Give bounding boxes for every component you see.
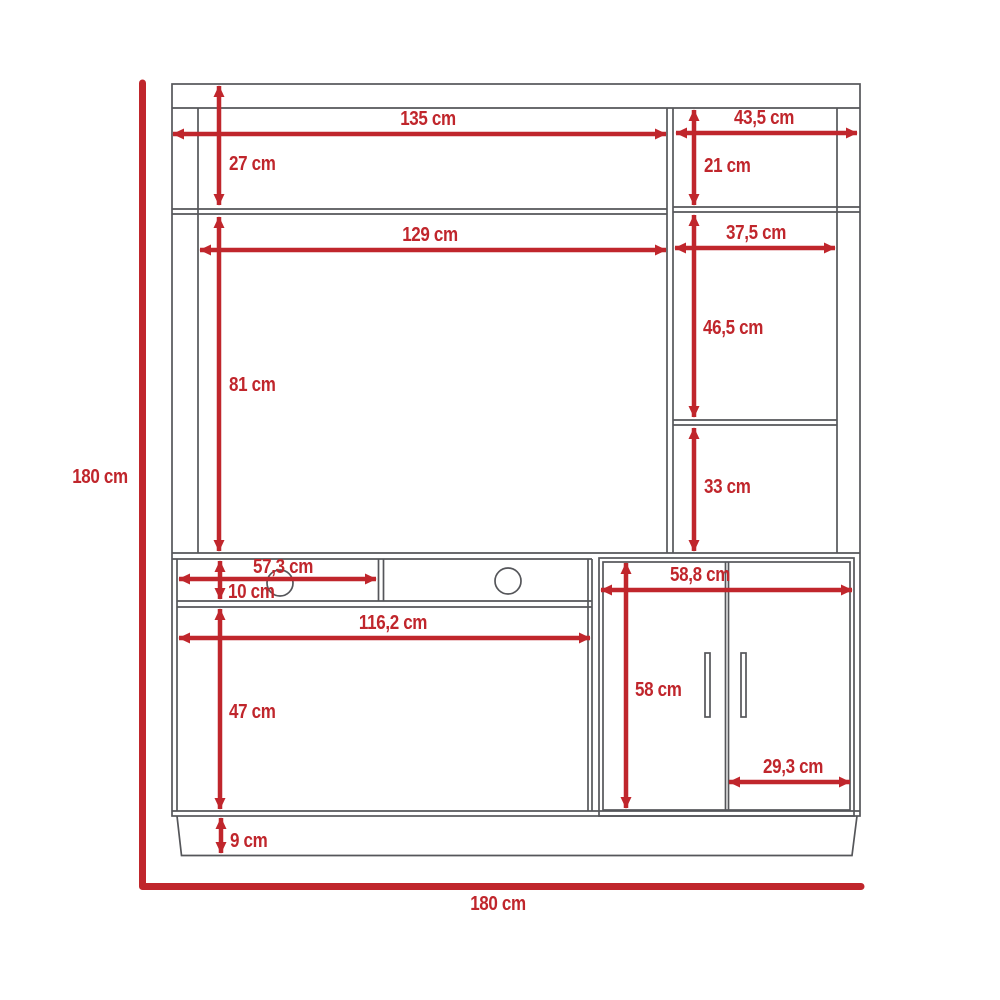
dim-label-top-left-shelf-height: 27 cm	[229, 154, 276, 174]
cabinet-dimension-drawing	[0, 0, 1000, 1000]
dimension-lines	[143, 83, 862, 887]
dim-label-door-cabinet-height: 58 cm	[635, 680, 682, 700]
dim-label-right-column-width: 37,5 cm	[726, 223, 786, 243]
dim-label-media-shelf-left-width: 57,3 cm	[253, 557, 313, 577]
diagram-canvas: 180 cm 180 cm 135 cm 27 cm 43,5 cm 21 cm…	[0, 0, 1000, 1000]
dim-label-tv-compartment-width: 129 cm	[402, 225, 458, 245]
dim-label-door-cabinet-width: 58,8 cm	[670, 565, 730, 585]
dim-label-overall-width: 180 cm	[470, 894, 526, 914]
dim-label-top-left-shelf-width: 135 cm	[400, 109, 456, 129]
dim-label-overall-height: 180 cm	[72, 467, 128, 487]
dim-label-media-shelf-height: 10 cm	[228, 582, 275, 602]
overall-dimension-line	[143, 83, 862, 887]
dim-label-right-lower-compartment-height: 33 cm	[704, 477, 751, 497]
door-handle-left	[705, 653, 710, 717]
dim-label-right-upper-compartment-height: 46,5 cm	[703, 318, 763, 338]
dim-label-base-height: 9 cm	[230, 831, 267, 851]
dim-label-lower-compartment-width: 116,2 cm	[359, 613, 427, 633]
plinth-base	[177, 816, 857, 856]
furniture-outline	[172, 84, 860, 856]
dim-label-lower-compartment-height: 47 cm	[229, 702, 276, 722]
cable-hole-right-icon	[495, 568, 521, 594]
dim-label-tv-compartment-height: 81 cm	[229, 375, 276, 395]
door-handle-right	[741, 653, 746, 717]
dim-label-top-right-shelf-width: 43,5 cm	[734, 108, 794, 128]
dim-label-door-width: 29,3 cm	[763, 757, 823, 777]
dim-label-top-right-shelf-height: 21 cm	[704, 156, 751, 176]
